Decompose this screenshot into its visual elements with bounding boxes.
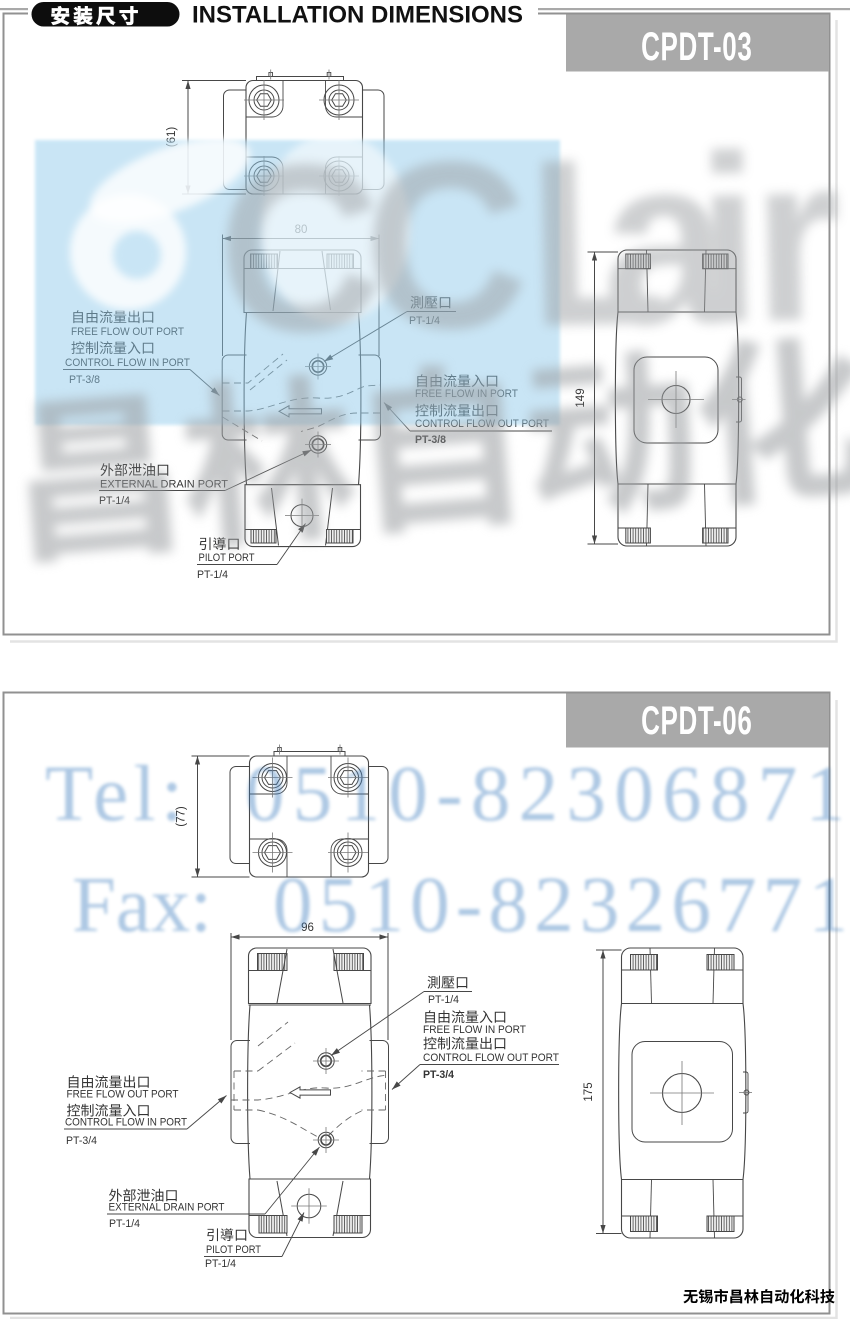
svg-text:CPDT-03: CPDT-03: [641, 24, 752, 69]
svg-text:Fax:: Fax:: [72, 862, 212, 949]
svg-text:149: 149: [575, 388, 587, 407]
svg-text:Tel:: Tel:: [45, 751, 183, 838]
svg-text:PT-1/4: PT-1/4: [428, 994, 459, 1006]
svg-text:PT-3/4: PT-3/4: [423, 1069, 455, 1081]
svg-text:CONTROL FLOW IN PORT: CONTROL FLOW IN PORT: [65, 1117, 187, 1129]
svg-text:CPDT-06: CPDT-06: [641, 698, 752, 743]
svg-text:PT-1/4: PT-1/4: [197, 569, 228, 581]
svg-text:FREE FLOW OUT PORT: FREE FLOW OUT PORT: [67, 1089, 179, 1101]
svg-text:PT-1/4: PT-1/4: [109, 1218, 140, 1230]
svg-text:CONTROL FLOW OUT PORT: CONTROL FLOW OUT PORT: [423, 1052, 559, 1064]
svg-text:PILOT PORT: PILOT PORT: [199, 552, 255, 564]
svg-text:FREE FLOW IN PORT: FREE FLOW IN PORT: [423, 1024, 526, 1036]
svg-text:PT-1/4: PT-1/4: [205, 1258, 236, 1270]
svg-text:PT-3/4: PT-3/4: [66, 1135, 97, 1147]
svg-text:INSTALLATION DIMENSIONS: INSTALLATION DIMENSIONS: [192, 2, 523, 29]
svg-text:PILOT PORT: PILOT PORT: [206, 1244, 261, 1256]
svg-text:175: 175: [583, 1082, 595, 1101]
svg-text:EXTERNAL DRAIN PORT: EXTERNAL DRAIN PORT: [109, 1202, 225, 1214]
